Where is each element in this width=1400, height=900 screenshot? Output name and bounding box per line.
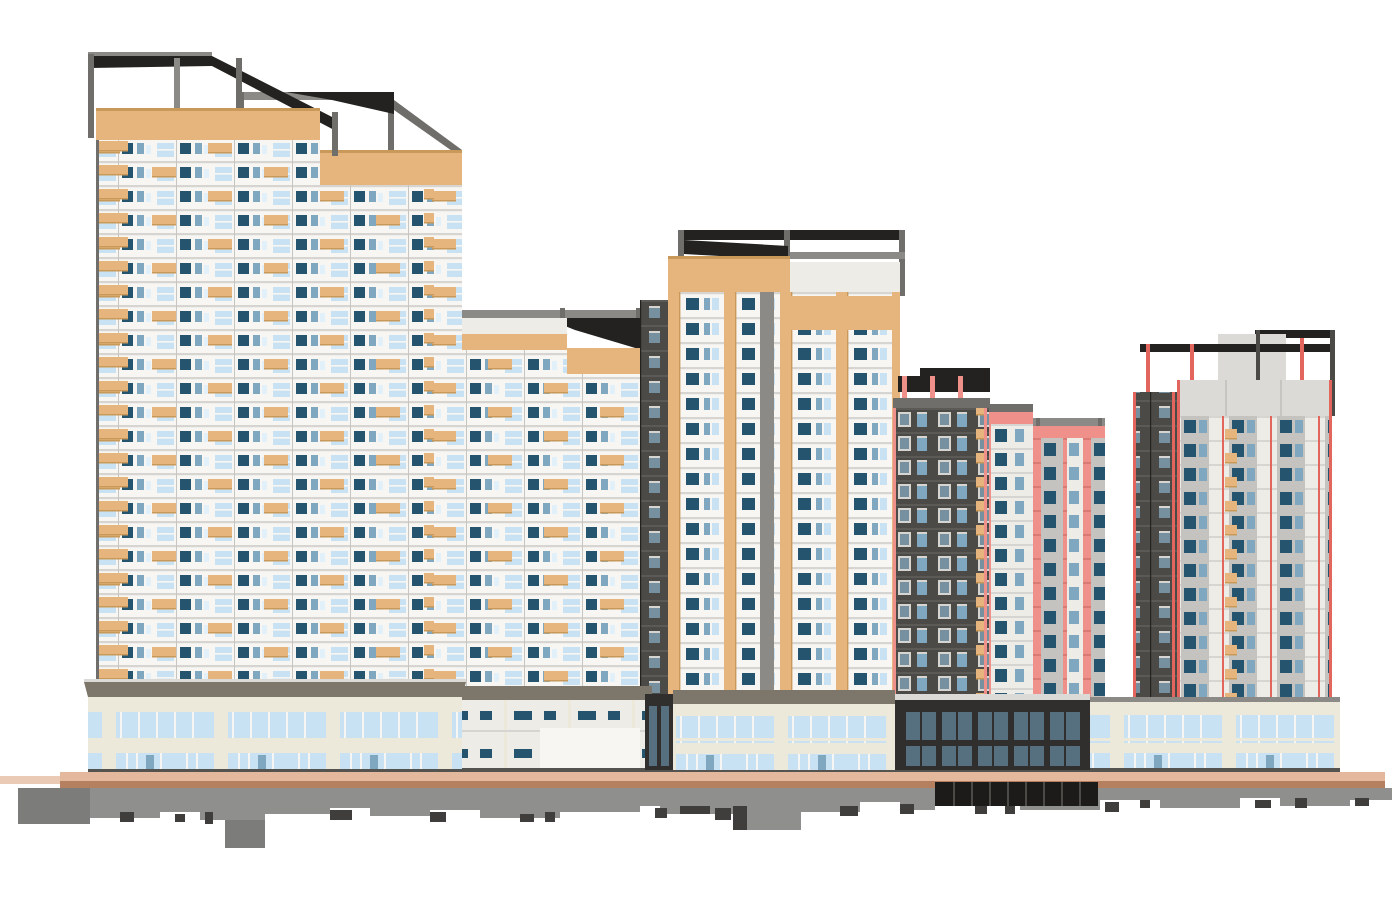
tower-3 — [452, 308, 642, 690]
tower-1-cornice-edge — [96, 108, 320, 111]
tower-3-cornice-right — [567, 348, 642, 374]
tower-4 — [640, 230, 905, 700]
tower-6-tan-column — [1225, 416, 1237, 715]
tower-5-roof-frame — [893, 368, 990, 408]
podium-retail-right — [1090, 697, 1340, 772]
tower-1-left-edge — [96, 140, 99, 688]
tower-5-right-beam — [1033, 418, 1105, 426]
tower-4-cornice-left — [668, 258, 790, 292]
tower-2-cornice-edge — [318, 150, 462, 153]
tower-5-red-stripe-left — [893, 408, 896, 705]
tower-5-salmon-subtower — [1033, 438, 1105, 710]
tower-6-red-stripe-side-a — [1133, 392, 1136, 715]
tower-5-tan-column — [976, 408, 984, 705]
tower-1-tan-balcony-column — [96, 140, 130, 688]
tower-3-tan-accents — [452, 350, 642, 690]
tower-5-dark-subtower — [893, 408, 989, 705]
tower-5-mid-cornice — [989, 412, 1033, 424]
tower-6 — [1133, 330, 1335, 715]
tower-6-red-stripe-side-b — [1172, 392, 1175, 715]
tower-3-parapet — [452, 318, 567, 334]
tower-5 — [893, 368, 1105, 710]
tower-4-parapet-right — [790, 262, 900, 296]
basement-garage-opening — [935, 782, 1098, 806]
tower-6-side-elevation — [1133, 392, 1177, 715]
sidewalk — [0, 770, 1385, 789]
tower-5-mid-beam — [989, 404, 1033, 412]
tower-2-tan-accents — [318, 185, 462, 690]
tower-6-top-band — [1177, 380, 1332, 416]
tower-4-side-elevation — [640, 300, 668, 695]
basement-substructure — [18, 782, 1392, 848]
basement-step-box-b — [733, 806, 801, 830]
tower-6-red-stripe-front-b — [1329, 380, 1332, 715]
tower-1-cornice — [96, 110, 320, 140]
tower-4-cornice-right — [790, 296, 900, 330]
basement-left-step — [18, 788, 90, 824]
tower-2-tan-column — [424, 185, 434, 690]
tower-5-right-cornice — [1033, 426, 1105, 438]
tower-3-cornice-left — [452, 334, 567, 351]
tower-5-mid-subtower — [989, 424, 1033, 705]
tower-6-red-stripe-front-a — [1177, 380, 1180, 715]
tower-6-facade — [1177, 416, 1332, 715]
rendering-canvas — [0, 0, 1400, 900]
podium-retail-left — [84, 679, 466, 773]
tower-6-band-seam-a — [1225, 380, 1227, 416]
tower-4-core-shaft — [760, 292, 774, 700]
podium-dark-pavilion — [895, 694, 1090, 775]
tower-5-red-stripe-right — [984, 408, 987, 705]
tower-1 — [88, 52, 338, 688]
tower-2-cornice — [318, 152, 462, 185]
tower-6-band-seam-b — [1280, 380, 1282, 416]
tower-4-facade — [668, 292, 900, 700]
podium-retail-center — [645, 690, 895, 774]
tower-4-cornice-left-edge — [668, 256, 790, 259]
podium-service-block — [440, 686, 652, 772]
building-complex-rendering — [0, 0, 1400, 900]
basement-step-box-a — [225, 814, 265, 848]
